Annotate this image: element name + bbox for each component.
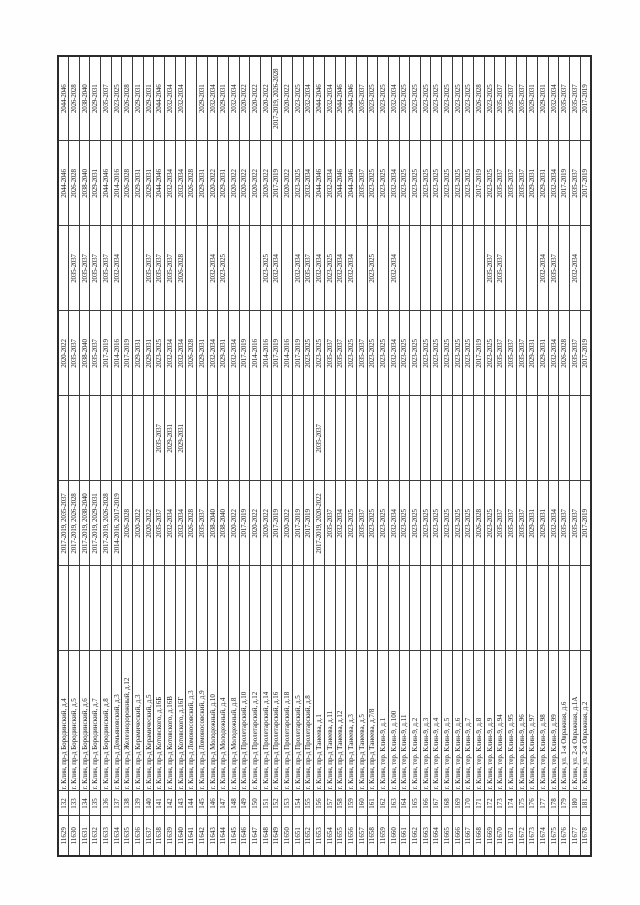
table-row: 11669172г. Клин, тер. Клин-9, д.92023-20… [484, 56, 495, 856]
table-row: 11670173г. Клин, тер. Клин-9, д.942035-2… [495, 56, 506, 856]
cell-period: 2044-2046 [154, 141, 165, 226]
cell-address: г. Клин, ул. 2-я Овражная, д.2 [580, 651, 591, 791]
cell-row-id: 11645 [229, 816, 240, 856]
cell-period: 2032-2034 [292, 226, 303, 311]
cell-period [548, 566, 559, 651]
cell-row-number: 168 [442, 791, 453, 816]
cell-row-id: 11631 [79, 816, 90, 856]
cell-row-id: 11670 [495, 816, 506, 856]
cell-row-id: 11644 [218, 816, 229, 856]
cell-address: г. Клин, пр-д Демьяновский, д.3 [111, 651, 122, 791]
cell-period [410, 566, 421, 651]
cell-row-id: 11676 [559, 816, 570, 856]
cell-address: г. Клин, тер. Клин-9, д.1 [378, 651, 389, 791]
cell-period: 2035-2037 [356, 141, 367, 226]
cell-period [197, 226, 208, 311]
cell-row-id: 11640 [175, 816, 186, 856]
cell-period: 2035-2037 [69, 226, 80, 311]
table-row: 11631134г. Клин, пр-д Бородинский, д.620… [79, 56, 90, 856]
cell-period: 2020-2022 [250, 141, 261, 226]
cell-period [474, 226, 485, 311]
cell-row-id: 11647 [250, 816, 261, 856]
cell-period: 2017-2019, 2026-2028 [101, 481, 112, 566]
cell-row-id: 11654 [324, 816, 335, 856]
cell-period: 2026-2028 [122, 56, 133, 141]
cell-period: 2029-2031 [133, 311, 144, 396]
cell-period: 2032-2034 [335, 481, 346, 566]
cell-period: 2044-2046 [346, 56, 357, 141]
cell-period [133, 396, 144, 481]
cell-address: г. Клин, тер. Клин-9, д.8 [474, 651, 485, 791]
cell-period: 2023-2025 [346, 311, 357, 396]
cell-period: 2017-2019 [474, 311, 485, 396]
cell-period: 2026-2028 [69, 141, 80, 226]
cell-period: 2032-2034 [335, 226, 346, 311]
cell-period: 2032-2034 [175, 56, 186, 141]
cell-period: 2023-2025 [292, 141, 303, 226]
cell-period [399, 566, 410, 651]
cell-period: 2035-2037 [570, 481, 581, 566]
cell-row-number: 161 [367, 791, 378, 816]
cell-period: 2023-2025 [378, 481, 389, 566]
cell-period: 2032-2034 [548, 141, 559, 226]
cell-row-id: 11672 [516, 816, 527, 856]
cell-row-number: 155 [303, 791, 314, 816]
cell-period: 2035-2037 [484, 226, 495, 311]
cell-period: 2035-2037 [101, 226, 112, 311]
cell-period [271, 396, 282, 481]
cell-period [474, 566, 485, 651]
cell-row-number: 143 [175, 791, 186, 816]
cell-address: г. Клин, пр-д Керамический, д.5 [143, 651, 154, 791]
cell-period: 2014-2016 [111, 141, 122, 226]
cell-period: 2023-2025 [420, 56, 431, 141]
cell-period: 2020-2022 [133, 481, 144, 566]
table-row: 11654157г. Клин, пр-д Танеева, д.112035-… [324, 56, 335, 856]
cell-period: 2035-2037 [548, 226, 559, 311]
cell-period: 2020-2022 [207, 141, 218, 226]
cell-period: 2032-2034 [303, 56, 314, 141]
cell-period: 2029-2031 [143, 56, 154, 141]
cell-period: 2044-2046 [346, 141, 357, 226]
cell-period: 2023-2025 [452, 56, 463, 141]
cell-period [442, 396, 453, 481]
cell-period: 2023-2025 [154, 311, 165, 396]
cell-period: 2029-2031 [538, 311, 549, 396]
cell-period: 2023-2025 [420, 311, 431, 396]
cell-period [250, 226, 261, 311]
cell-period: 2032-2034 [324, 141, 335, 226]
cell-period [186, 226, 197, 311]
cell-period [356, 396, 367, 481]
cell-period [79, 396, 90, 481]
cell-period [570, 396, 581, 481]
table-row: 11630133г. Клин, пр-д Бородинский, д.520… [69, 56, 80, 856]
cell-row-id: 11678 [580, 816, 591, 856]
cell-row-number: 132 [58, 791, 69, 816]
cell-row-id: 11656 [346, 816, 357, 856]
cell-period: 2035-2037 [570, 311, 581, 396]
cell-period [580, 396, 591, 481]
cell-period [69, 396, 80, 481]
cell-period: 2035-2037 [154, 226, 165, 311]
cell-period: 2035-2037 [90, 311, 101, 396]
cell-row-number: 140 [143, 791, 154, 816]
cell-period: 2026-2028 [474, 481, 485, 566]
cell-period: 2044-2046 [101, 141, 112, 226]
cell-address: г. Клин, пр-д Керамический, д.3 [133, 651, 144, 791]
cell-period [122, 566, 133, 651]
cell-period: 2032-2034 [538, 226, 549, 311]
cell-row-id: 11677 [570, 816, 581, 856]
cell-row-id: 11630 [69, 816, 80, 856]
table-row: 11636139г. Клин, пр-д Керамический, д.32… [133, 56, 144, 856]
cell-period: 2023-2025 [431, 56, 442, 141]
table-row: 11672175г. Клин, тер. Клин-9, д.962035-2… [516, 56, 527, 856]
table-row: 11661164г. Клин, тер. Клин-9, д.112023-2… [399, 56, 410, 856]
table-row: 11668171г. Клин, тер. Клин-9, д.82026-20… [474, 56, 485, 856]
table-row: 11635138г. Клин, пр-д Железнодорожный, д… [122, 56, 133, 856]
cell-period: 2023-2025 [399, 481, 410, 566]
cell-period: 2017-2019 [271, 141, 282, 226]
cell-row-number: 176 [527, 791, 538, 816]
cell-period [58, 396, 69, 481]
cell-address: г. Клин, тер. Клин-9, д.3 [420, 651, 431, 791]
cell-period: 2035-2037 [516, 311, 527, 396]
cell-period [463, 396, 474, 481]
cell-row-number: 145 [197, 791, 208, 816]
cell-period [292, 396, 303, 481]
table-row: 11663166г. Клин, тер. Клин-9, д.32023-20… [420, 56, 431, 856]
cell-period: 2023-2025 [484, 311, 495, 396]
cell-period: 2032-2034 [548, 481, 559, 566]
cell-address: г. Клин, пр-д Котовского, д.16В [165, 651, 176, 791]
cell-period: 2029-2031 [197, 56, 208, 141]
cell-period: 2026-2028 [186, 141, 197, 226]
cell-period: 2023-2025 [452, 311, 463, 396]
cell-address: г. Клин, пр-д Молодежный, д.8 [229, 651, 240, 791]
cell-period [356, 226, 367, 311]
cell-period [292, 566, 303, 651]
cell-period [452, 396, 463, 481]
cell-period: 2023-2025 [410, 56, 421, 141]
cell-period [559, 396, 570, 481]
cell-period: 2035-2037 [495, 56, 506, 141]
cell-period: 2014-2016 [111, 311, 122, 396]
cell-period: 2044-2046 [58, 56, 69, 141]
cell-period: 2020-2022 [282, 56, 293, 141]
cell-period: 2044-2046 [58, 141, 69, 226]
cell-address: г. Клин, пр-д Бородинский, д.6 [79, 651, 90, 791]
cell-period: 2029-2031 [175, 396, 186, 481]
cell-period [218, 396, 229, 481]
cell-period [516, 566, 527, 651]
table-row: 11641144г. Клин, пр-д Ломоносовский, д.3… [186, 56, 197, 856]
cell-period: 2017-2019 [580, 481, 591, 566]
cell-period: 2029-2031 [527, 481, 538, 566]
cell-row-number: 170 [463, 791, 474, 816]
cell-period: 2023-2025 [463, 141, 474, 226]
cell-period: 2020-2022 [282, 481, 293, 566]
cell-address: г. Клин, ул. 1-я Овражная, д.6 [559, 651, 570, 791]
cell-row-number: 167 [431, 791, 442, 816]
cell-row-id: 11665 [442, 816, 453, 856]
table-row: 11648151г. Клин, пр-д Пролетарский, д.14… [260, 56, 271, 856]
cell-row-id: 11650 [282, 816, 293, 856]
cell-address: г. Клин, пр-д Пролетарский, д.5 [292, 651, 303, 791]
cell-period [250, 396, 261, 481]
cell-row-id: 11651 [292, 816, 303, 856]
cell-row-id: 11664 [431, 816, 442, 856]
cell-period: 2035-2037 [303, 226, 314, 311]
cell-row-id: 11629 [58, 816, 69, 856]
cell-period: 2035-2037 [356, 56, 367, 141]
table-row: 11665168г. Клин, тер. Клин-9, д.52023-20… [442, 56, 453, 856]
cell-period: 2020-2022 [260, 481, 271, 566]
cell-period: 2020-2022 [143, 481, 154, 566]
cell-period: 2035-2037 [154, 481, 165, 566]
cell-row-number: 139 [133, 791, 144, 816]
cell-period: 2029-2031 [218, 56, 229, 141]
cell-period: 2023-2025 [442, 56, 453, 141]
cell-period [367, 396, 378, 481]
cell-period [260, 566, 271, 651]
cell-address: г. Клин, тер. Клин-9, д.100 [388, 651, 399, 791]
cell-period: 2029-2031 [538, 481, 549, 566]
cell-period: 2032-2034 [229, 56, 240, 141]
cell-period: 2023-2025 [399, 56, 410, 141]
cell-period: 2023-2025 [324, 226, 335, 311]
cell-row-number: 177 [538, 791, 549, 816]
cell-period [239, 226, 250, 311]
cell-period: 2038-2040 [207, 481, 218, 566]
table-row: 11657160г. Клин, пр-д Танеева, д.52035-2… [356, 56, 367, 856]
cell-period [229, 226, 240, 311]
cell-address: г. Клин, пр-д Бородинский, д.7 [90, 651, 101, 791]
cell-address: г. Клин, тер. Клин-9, д.2 [410, 651, 421, 791]
table-row: 11656159г. Клин, пр-д Танеева, д.32023-2… [346, 56, 357, 856]
cell-row-id: 11648 [260, 816, 271, 856]
cell-address: г. Клин, тер. Клин-9, д.96 [516, 651, 527, 791]
cell-period: 2023-2025 [410, 311, 421, 396]
rotated-table-region: 11629132г. Клин, пр-д Бородинский, д.420… [57, 57, 590, 857]
cell-row-number: 164 [399, 791, 410, 816]
cell-period: 2020-2022 [229, 481, 240, 566]
cell-period [463, 226, 474, 311]
cell-period [101, 396, 112, 481]
cell-period: 2035-2037 [506, 56, 517, 141]
cell-address: г. Клин, тер. Клин-9, д.97 [527, 651, 538, 791]
cell-row-number: 159 [346, 791, 357, 816]
cell-period: 2032-2034 [207, 226, 218, 311]
cell-period [303, 566, 314, 651]
cell-row-number: 150 [250, 791, 261, 816]
cell-row-id: 11646 [239, 816, 250, 856]
table-row: 11647150г. Клин, пр-д Пролетарский, д.12… [250, 56, 261, 856]
cell-period [122, 396, 133, 481]
cell-period [431, 566, 442, 651]
cell-period: 2032-2034 [314, 226, 325, 311]
cell-period: 2044-2046 [314, 56, 325, 141]
cell-period: 2023-2025 [378, 141, 389, 226]
cell-period: 2023-2025 [218, 226, 229, 311]
cell-period [495, 396, 506, 481]
cell-period: 2029-2031 [133, 56, 144, 141]
cell-period [420, 226, 431, 311]
cell-period: 2029-2031 [143, 141, 154, 226]
cell-row-number: 160 [356, 791, 367, 816]
cell-period: 2017-2019, 2035-2037 [58, 481, 69, 566]
cell-period: 2023-2025 [484, 56, 495, 141]
cell-period [559, 566, 570, 651]
cell-period: 2044-2046 [335, 141, 346, 226]
cell-period: 2032-2034 [388, 226, 399, 311]
cell-period: 2035-2037 [495, 311, 506, 396]
cell-period [346, 566, 357, 651]
cell-period [506, 396, 517, 481]
cell-period: 2035-2037 [570, 56, 581, 141]
cell-period [90, 396, 101, 481]
cell-period: 2017-2019 [239, 311, 250, 396]
cell-row-number: 174 [506, 791, 517, 816]
cell-row-number: 169 [452, 791, 463, 816]
cell-row-id: 11674 [538, 816, 549, 856]
cell-period: 2044-2046 [314, 141, 325, 226]
cell-period: 2023-2025 [399, 141, 410, 226]
cell-period [271, 566, 282, 651]
cell-period: 2020-2022 [229, 141, 240, 226]
cell-period: 2035-2037 [495, 141, 506, 226]
cell-period [463, 566, 474, 651]
cell-address: г. Клин, пр-д Пролетарский, д.12 [250, 651, 261, 791]
cell-period [186, 396, 197, 481]
cell-period [229, 396, 240, 481]
cell-row-id: 11643 [207, 816, 218, 856]
table-row: 11655158г. Клин, пр-д Танеева, д.122032-… [335, 56, 346, 856]
cell-period: 2023-2025 [452, 481, 463, 566]
cell-period [527, 566, 538, 651]
cell-period [143, 396, 154, 481]
cell-period [388, 396, 399, 481]
cell-period: 2023-2025 [442, 311, 453, 396]
cell-period: 2020-2022 [260, 141, 271, 226]
cell-period: 2035-2037 [335, 311, 346, 396]
cell-address: г. Клин, пр-д Бородинский, д.4 [58, 651, 69, 791]
cell-period [250, 566, 261, 651]
cell-period [111, 566, 122, 651]
cell-period: 2023-2025 [378, 56, 389, 141]
cell-row-id: 11659 [378, 816, 389, 856]
cell-row-id: 11652 [303, 816, 314, 856]
cell-period: 2029-2031 [90, 141, 101, 226]
cell-period: 2038-2040 [79, 56, 90, 141]
table-row: 11637140г. Клин, пр-д Керамический, д.52… [143, 56, 154, 856]
cell-address: г. Клин, пр-д Пролетарский, д.8 [303, 651, 314, 791]
cell-address: г. Клин, тер. Клин-9, д.94 [495, 651, 506, 791]
table-row: 11662165г. Клин, тер. Клин-9, д.22023-20… [410, 56, 421, 856]
cell-row-number: 149 [239, 791, 250, 816]
cell-row-id: 11637 [143, 816, 154, 856]
cell-period: 2035-2037 [314, 396, 325, 481]
cell-period: 2035-2037 [79, 226, 90, 311]
cell-period [314, 566, 325, 651]
cell-period: 2023-2025 [367, 56, 378, 141]
cell-period: 2035-2037 [516, 481, 527, 566]
cell-period: 2038-2040 [79, 311, 90, 396]
cell-period: 2023-2025 [303, 311, 314, 396]
cell-period [175, 566, 186, 651]
cell-period: 2023-2025 [431, 481, 442, 566]
cell-period [378, 226, 389, 311]
cell-period: 2032-2034 [303, 141, 314, 226]
cell-period: 2035-2037 [165, 226, 176, 311]
table-row: 11629132г. Клин, пр-д Бородинский, д.420… [58, 56, 69, 856]
cell-row-number: 180 [570, 791, 581, 816]
cell-period: 2032-2034 [548, 56, 559, 141]
cell-row-id: 11663 [420, 816, 431, 856]
cell-period: 2029-2031 [527, 56, 538, 141]
cell-period [335, 396, 346, 481]
cell-row-number: 178 [548, 791, 559, 816]
table-row: 11646149г. Клин, пр-д Пролетарский, д.10… [239, 56, 250, 856]
cell-period: 2017-2019 [271, 481, 282, 566]
cell-address: г. Клин, тер. Клин-9, д.6 [452, 651, 463, 791]
cell-period [516, 226, 527, 311]
cell-period: 2017-2019, 2026-2028 [271, 56, 282, 141]
cell-period: 2035-2037 [154, 396, 165, 481]
cell-period: 2038-2040 [218, 481, 229, 566]
cell-period: 2014-2016, 2017-2019 [111, 481, 122, 566]
cell-period: 2023-2025 [399, 311, 410, 396]
cell-period: 2023-2025 [378, 311, 389, 396]
scanned-document-page: 11629132г. Клин, пр-д Бородинский, д.420… [0, 0, 640, 905]
cell-row-number: 134 [79, 791, 90, 816]
cell-period: 2023-2025 [346, 481, 357, 566]
cell-period [229, 566, 240, 651]
table-row: 11642145г. Клин, пр-д Ломоносовский, д.9… [197, 56, 208, 856]
cell-period: 2032-2034 [271, 226, 282, 311]
cell-period: 2020-2022 [239, 141, 250, 226]
cell-period: 2029-2031 [143, 311, 154, 396]
cell-period: 2023-2025 [367, 141, 378, 226]
table-row: 11671174г. Клин, тер. Клин-9, д.952035-2… [506, 56, 517, 856]
cell-period: 2035-2037 [495, 481, 506, 566]
cell-address: г. Клин, пр-д Танеева, д.7/8 [367, 651, 378, 791]
table-row: 11644147г. Клин, пр-д Молодежный, д.4203… [218, 56, 229, 856]
table-row: 11674177г. Клин, тер. Клин-9, д.982029-2… [538, 56, 549, 856]
cell-row-id: 11636 [133, 816, 144, 856]
cell-address: г. Клин, тер. Клин-9, д.4 [431, 651, 442, 791]
table-row: 11676179г. Клин, ул. 1-я Овражная, д.620… [559, 56, 570, 856]
table-row: 11659162г. Клин, тер. Клин-9, д.12023-20… [378, 56, 389, 856]
cell-period: 2032-2034 [175, 311, 186, 396]
cell-period: 2026-2028 [559, 311, 570, 396]
cell-period: 2023-2025 [442, 481, 453, 566]
cell-row-id: 11668 [474, 816, 485, 856]
cell-period [58, 566, 69, 651]
table-row: 11673176г. Клин, тер. Клин-9, д.972029-2… [527, 56, 538, 856]
cell-address: г. Клин, пр-д Молодежный, д.10 [207, 651, 218, 791]
cell-period [79, 566, 90, 651]
cell-address: г. Клин, пр-д Танеева, д.5 [356, 651, 367, 791]
cell-period: 2017-2019, 2029-2031 [90, 481, 101, 566]
cell-row-number: 158 [335, 791, 346, 816]
cell-row-number: 136 [101, 791, 112, 816]
cell-row-number: 172 [484, 791, 495, 816]
cell-row-number: 153 [282, 791, 293, 816]
cell-period [282, 396, 293, 481]
cell-address: г. Клин, пр-д Железнодорожный, д.12 [122, 651, 133, 791]
